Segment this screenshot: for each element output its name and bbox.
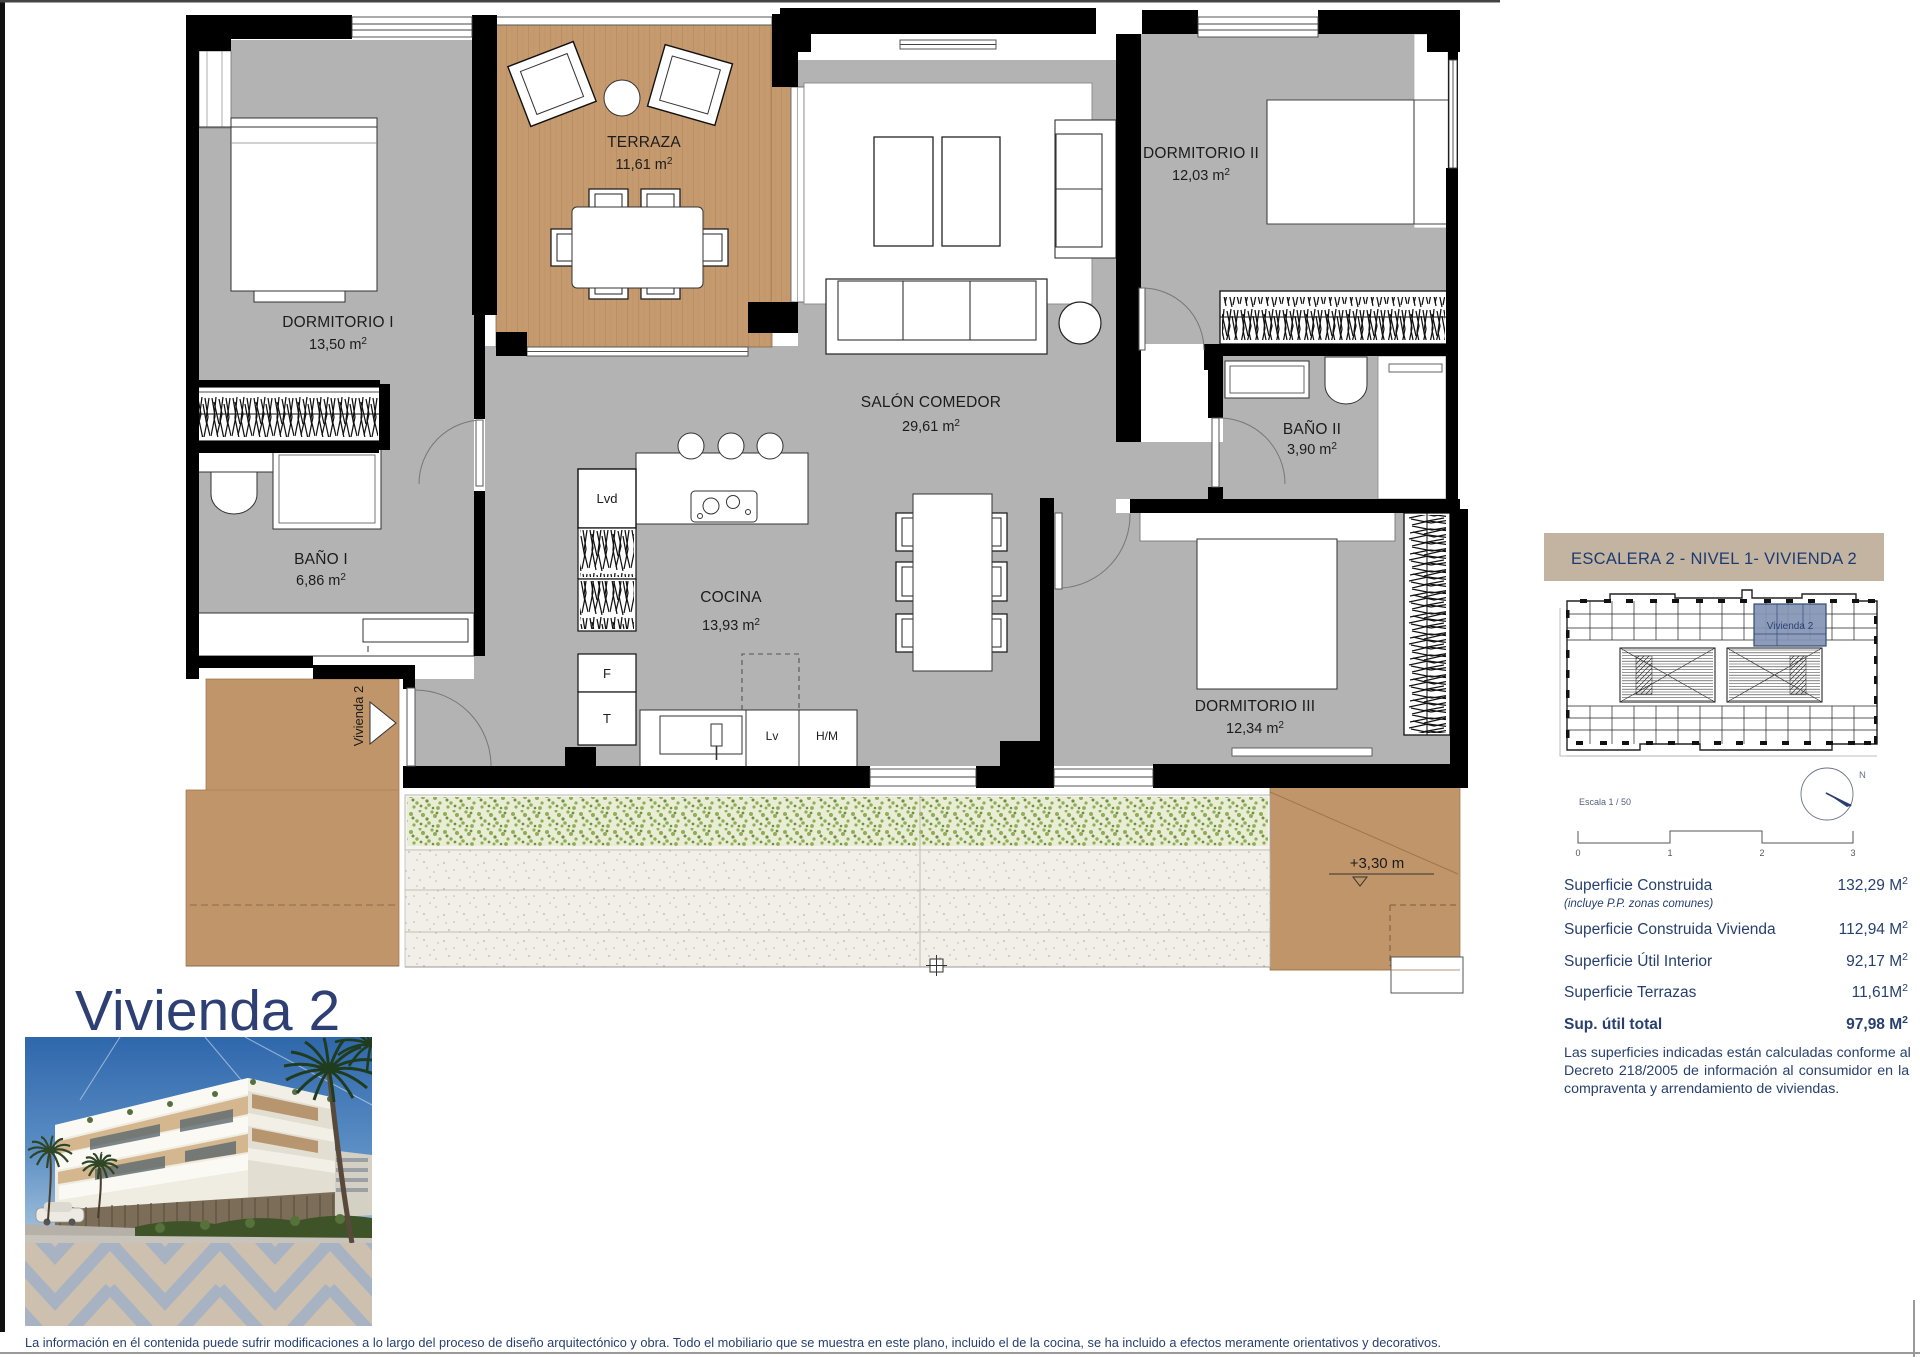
svg-text:6,86 m2: 6,86 m2 — [296, 572, 346, 589]
svg-text:Lvd: Lvd — [597, 491, 618, 506]
svg-text:DORMITORIO III: DORMITORIO III — [1195, 698, 1316, 715]
svg-text:3,90 m2: 3,90 m2 — [1287, 441, 1337, 458]
svg-text:DORMITORIO II: DORMITORIO II — [1143, 145, 1259, 162]
svg-text:Vivienda 2: Vivienda 2 — [75, 979, 340, 1043]
svg-text:29,61 m2: 29,61 m2 — [902, 418, 960, 435]
svg-text:1: 1 — [1667, 848, 1672, 858]
svg-text:132,29 M2: 132,29 M2 — [1838, 875, 1909, 894]
svg-text:13,50 m2: 13,50 m2 — [309, 336, 367, 353]
svg-text:112,94 M2: 112,94 M2 — [1839, 919, 1908, 938]
svg-text:11,61M2: 11,61M2 — [1852, 982, 1909, 1001]
svg-text:2: 2 — [1759, 848, 1764, 858]
svg-text:F: F — [603, 666, 611, 681]
svg-text:Superficie Construida: Superficie Construida — [1564, 877, 1713, 894]
svg-text:COCINA: COCINA — [700, 589, 762, 606]
svg-text:La información en él contenida: La información en él contenida puede suf… — [25, 1335, 1441, 1350]
svg-text:+3,30 m: +3,30 m — [1350, 855, 1405, 872]
svg-text:11,61 m2: 11,61 m2 — [616, 156, 673, 173]
svg-text:0: 0 — [1575, 848, 1580, 858]
svg-text:12,34 m2: 12,34 m2 — [1226, 720, 1284, 737]
svg-text:12,03 m2: 12,03 m2 — [1172, 167, 1230, 184]
svg-text:Superficie Terrazas: Superficie Terrazas — [1564, 984, 1697, 1001]
svg-text:92,17 M2: 92,17 M2 — [1846, 951, 1908, 970]
svg-text:Escala 1 / 50: Escala 1 / 50 — [1579, 797, 1631, 807]
svg-text:SALÓN COMEDOR: SALÓN COMEDOR — [861, 394, 1001, 411]
svg-text:Lv: Lv — [766, 729, 779, 743]
svg-text:97,98 M2: 97,98 M2 — [1846, 1014, 1908, 1033]
svg-text:Vivienda 2: Vivienda 2 — [351, 686, 366, 746]
svg-text:TERRAZA: TERRAZA — [607, 134, 681, 151]
svg-text:Superficie Útil Interior: Superficie Útil Interior — [1564, 953, 1712, 970]
svg-text:N: N — [1859, 770, 1866, 781]
svg-text:Vivienda 2: Vivienda 2 — [1767, 621, 1814, 632]
svg-text:3: 3 — [1850, 848, 1855, 858]
svg-text:13,93 m2: 13,93 m2 — [702, 617, 760, 634]
svg-text:Superficie Construida Vivienda: Superficie Construida Vivienda — [1564, 921, 1776, 938]
svg-text:H/M: H/M — [816, 729, 838, 743]
svg-text:BAÑO I: BAÑO I — [294, 551, 348, 568]
svg-text:DORMITORIO I: DORMITORIO I — [282, 314, 393, 331]
svg-text:BAÑO II: BAÑO II — [1283, 421, 1341, 438]
svg-text:(incluye P.P. zonas comunes): (incluye P.P. zonas comunes) — [1564, 898, 1713, 910]
svg-text:T: T — [603, 711, 611, 726]
svg-text:ESCALERA 2 - NIVEL 1- VIVIENDA: ESCALERA 2 - NIVEL 1- VIVIENDA 2 — [1571, 550, 1857, 568]
svg-text:Sup. útil total: Sup. útil total — [1564, 1016, 1662, 1033]
